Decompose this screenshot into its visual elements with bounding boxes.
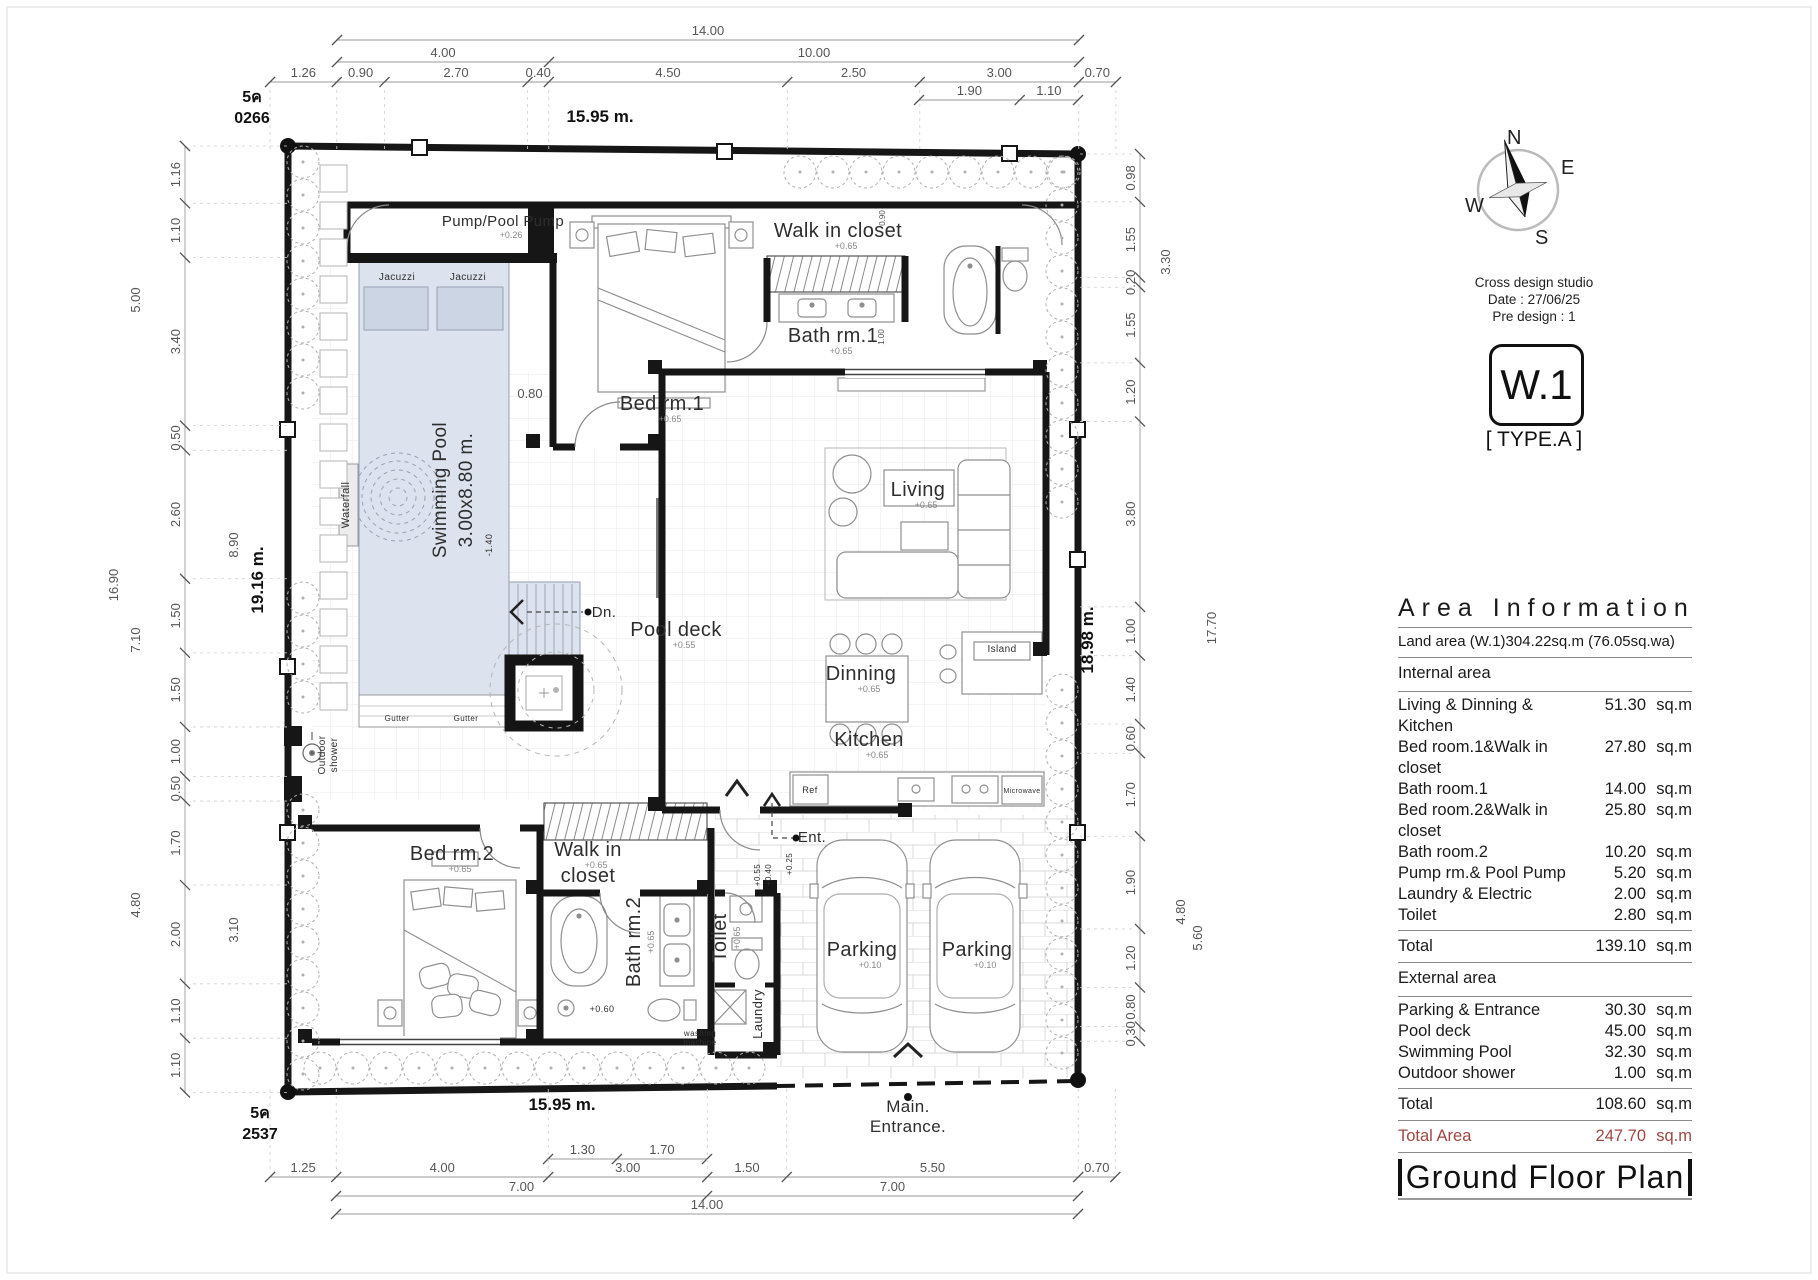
area-row: Swimming Pool32.30sq.m [1398, 1042, 1692, 1063]
area-row-label: Toilet [1398, 905, 1572, 926]
tree-center-dot [451, 1067, 454, 1070]
planter-square [320, 535, 347, 562]
tree-center-dot [1061, 1019, 1064, 1022]
area-row-value: 25.80 [1572, 800, 1646, 842]
area-row-label: Parking & Entrance [1398, 1000, 1572, 1021]
dimension-label: 3.10 [226, 917, 241, 942]
dimension-label: 14.00 [691, 1197, 724, 1212]
tree-center-dot [1061, 722, 1064, 725]
room-label: Gutter [385, 714, 410, 723]
tree-center-dot [931, 171, 934, 174]
dimension-label: 0.90 [348, 65, 373, 80]
planter-square [320, 165, 347, 192]
tree-center-dot [748, 1067, 751, 1070]
tree-center-dot [302, 194, 305, 197]
room-label: Main. [886, 1097, 930, 1116]
room-label: Toilet [709, 913, 731, 962]
corner-marker: 2537 [242, 1126, 278, 1143]
tree-center-dot [302, 260, 305, 263]
area-row-value: 30.30 [1572, 1000, 1646, 1021]
tree-center-dot [1061, 788, 1064, 791]
planter-square [320, 313, 347, 340]
area-row-value: 14.00 [1572, 779, 1646, 800]
area-row-label: Living & Dinning & Kitchen [1398, 695, 1572, 737]
planter-squares [320, 165, 347, 710]
dimension-label: 4.80 [1173, 899, 1188, 924]
dimension-label: 7.00 [880, 1179, 905, 1194]
room-label: closet [561, 865, 616, 887]
area-row: Pump rm.& Pool Pump5.20sq.m [1398, 863, 1692, 884]
pool-gutter [359, 695, 509, 727]
tree-center-dot [1061, 369, 1064, 372]
area-row-value: 1.00 [1572, 1063, 1646, 1084]
tree-center-dot [385, 1067, 388, 1070]
planter-square [320, 572, 347, 599]
tree-center-dot [1061, 689, 1064, 692]
survey-corner-markers: 5ค02665ค2537 [234, 89, 278, 1143]
plan-code: W.1 [1500, 361, 1572, 409]
area-row-label: Bed room.1&Walk in closet [1398, 737, 1572, 779]
dimension-label: 1.16 [168, 162, 183, 187]
dimension-label: 1.30 [570, 1142, 595, 1157]
dimension-label: 5.00 [128, 287, 143, 312]
dimension-label: 0.40 [526, 65, 551, 80]
area-row-unit: sq.m [1646, 884, 1692, 905]
planter-square [320, 276, 347, 303]
area-row-value: 45.00 [1572, 1021, 1646, 1042]
area-row-unit: sq.m [1646, 1021, 1692, 1042]
area-row-unit: sq.m [1646, 1000, 1692, 1021]
level-label: +0.65 [866, 750, 889, 760]
area-row-label: Swimming Pool [1398, 1042, 1572, 1063]
tree-center-dot [418, 1067, 421, 1070]
tree-center-dot [865, 171, 868, 174]
tree-center-dot [319, 1067, 322, 1070]
dimension-label: 1.70 [1123, 782, 1138, 807]
level-label: +0.65 [830, 346, 853, 356]
tree-center-dot [1061, 303, 1064, 306]
room-label: Swimming Pool [430, 422, 451, 558]
room-label: Walk in closet [774, 220, 902, 242]
room-label: Bed rm.2 [410, 843, 494, 865]
dimension-label: 0.70 [1084, 1160, 1109, 1175]
area-row: Toilet2.80sq.m [1398, 905, 1692, 926]
dimension-label: 1.90 [1123, 870, 1138, 895]
room-label: 3.00x8.80 m. [456, 433, 477, 548]
area-row-unit: sq.m [1646, 905, 1692, 926]
tree-center-dot [352, 1067, 355, 1070]
area-row-label: Pool deck [1398, 1021, 1572, 1042]
room-label: +0.40 [764, 864, 773, 886]
predesign-line: Pre design : 1 [1448, 308, 1620, 325]
internal-area-header: Internal area [1398, 661, 1692, 687]
area-row: Pool deck45.00sq.m [1398, 1021, 1692, 1042]
tree-center-dot [484, 1067, 487, 1070]
area-info-title: Area Information [1398, 594, 1692, 623]
dimension-label: 1.55 [1123, 312, 1138, 337]
date-line: Date : 27/06/25 [1448, 291, 1620, 308]
dimension-label: 1.70 [168, 830, 183, 855]
dimension-label: 1.00 [877, 329, 886, 345]
tree-center-dot [1061, 468, 1064, 471]
plan-type-label: [ TYPE.A ] [1454, 428, 1614, 452]
room-label: Kitchen [834, 729, 904, 751]
tree-center-dot [302, 630, 305, 633]
dimension-label: 3.80 [1123, 501, 1138, 526]
level-label: +0.26 [500, 230, 523, 240]
area-row-value: 5.20 [1572, 863, 1646, 884]
level-label: +0.10 [859, 960, 882, 970]
room-label: Bath rm.2 [623, 897, 645, 987]
tree-center-dot [302, 974, 305, 977]
dimension-label: 1.20 [1123, 946, 1138, 971]
land-area-line: Land area (W.1)304.22sq.m (76.05sq.wa) [1398, 631, 1692, 653]
area-information-panel: Area Information Land area (W.1)304.22sq… [1398, 594, 1692, 1200]
tree-center-dot [1061, 237, 1064, 240]
room-label: Microwave [1003, 788, 1040, 795]
tree-center-dot [1061, 953, 1064, 956]
boundary-length-label: 19.16 m. [248, 546, 267, 613]
tree-center-dot [302, 359, 305, 362]
sheet-title: Ground Floor Plan [1402, 1159, 1688, 1196]
area-row-value: 32.30 [1572, 1042, 1646, 1063]
corner-marker: 5ค [242, 89, 262, 106]
road-boundary-dashed [777, 1081, 1078, 1086]
level-label: +0.65 [835, 241, 858, 251]
total-value: 139.10 [1572, 934, 1646, 958]
tree-center-dot [1061, 755, 1064, 758]
dimension-label: 0.80 [1123, 994, 1138, 1019]
tree-center-dot [964, 171, 967, 174]
tree-center-dot [302, 875, 305, 878]
dimension-label: 1.25 [290, 1160, 315, 1175]
area-row-unit: sq.m [1646, 737, 1692, 779]
tree-center-dot [1061, 435, 1064, 438]
boundary-length-label: 15.95 m. [528, 1095, 595, 1114]
dimension-label: 10.00 [798, 45, 831, 60]
area-row-unit: sq.m [1646, 695, 1692, 737]
dimension-label: 0.80 [517, 386, 542, 401]
room-label: Parking [942, 939, 1013, 961]
grand-total-row: Total Area 247.70 sq.m [1398, 1124, 1692, 1148]
bathtub-1-icon [944, 246, 996, 334]
compass-e: E [1561, 157, 1574, 179]
tree-center-dot [1061, 171, 1064, 174]
dimension-label: 1.00 [168, 739, 183, 764]
dimension-label: 4.50 [655, 65, 680, 80]
tree-center-dot [1061, 501, 1064, 504]
level-label: +0.65 [858, 684, 881, 694]
level-label: +0.65 [659, 414, 682, 424]
tree-center-dot [302, 1007, 305, 1010]
tree-center-dot [616, 1067, 619, 1070]
grand-total-value: 247.70 [1572, 1124, 1646, 1148]
planter-square [320, 424, 347, 451]
external-area-rows: Parking & Entrance30.30sq.mPool deck45.0… [1398, 1000, 1692, 1084]
studio-name: Cross design studio [1448, 274, 1620, 291]
boundary-length-label: 18.98 m. [1078, 606, 1097, 673]
dimension-label: 1.10 [168, 218, 183, 243]
vanity-2-icon [660, 896, 694, 986]
area-row-unit: sq.m [1646, 779, 1692, 800]
area-row-unit: sq.m [1646, 842, 1692, 863]
tree-center-dot [302, 161, 305, 164]
area-row-unit: sq.m [1646, 1063, 1692, 1084]
dimension-label: 1.10 [1036, 83, 1061, 98]
tree-center-dot [302, 1040, 305, 1043]
dimension-label: 0.20 [1123, 270, 1138, 295]
room-label: Living [891, 479, 946, 501]
room-label: Dn. [592, 604, 617, 621]
title-block: Cross design studio Date : 27/06/25 Pre … [1448, 274, 1620, 325]
tree-center-dot [1061, 920, 1064, 923]
dimension-label: 4.80 [128, 892, 143, 917]
north-compass: N E W S [1443, 118, 1593, 268]
plan-code-box: W.1 [1489, 344, 1584, 426]
tree-center-dot [302, 326, 305, 329]
tree-center-dot [682, 1067, 685, 1070]
tree-center-dot [550, 1067, 553, 1070]
internal-total-row: Total 139.10 sq.m [1398, 934, 1692, 958]
area-row: Bath room.114.00sq.m [1398, 779, 1692, 800]
planter-square [320, 202, 347, 229]
dimension-label: 1.40 [1123, 677, 1138, 702]
tree-center-dot [302, 663, 305, 666]
room-label: Laundry [750, 989, 765, 1039]
dimension-label: 0.70 [1085, 65, 1110, 80]
compass-s: S [1535, 227, 1548, 249]
planter-square [320, 387, 347, 414]
area-row: Outdoor shower1.00sq.m [1398, 1063, 1692, 1084]
dimension-label: 1.00 [1123, 619, 1138, 644]
room-label: Bath rm.1 [788, 325, 878, 347]
room-label: Waterfall [340, 482, 352, 529]
area-row-unit: sq.m [1646, 800, 1692, 842]
corner-marker: 0266 [234, 110, 270, 127]
area-row: Laundry & Electric2.00sq.m [1398, 884, 1692, 905]
dimension-label: 7.00 [509, 1179, 534, 1194]
tree-center-dot [302, 842, 305, 845]
room-label: Walk in [554, 839, 622, 861]
tree-center-dot [898, 171, 901, 174]
dimension-label: 14.00 [692, 23, 725, 38]
dimension-label: 5.60 [1190, 925, 1205, 950]
room-label: +0.25 [785, 853, 794, 875]
room-label: Ent. [798, 829, 826, 846]
dimension-label: 7.10 [128, 627, 143, 652]
grand-total-unit: sq.m [1646, 1124, 1692, 1148]
dimension-label: 0.30 [1123, 1021, 1138, 1046]
tree-center-dot [302, 1073, 305, 1076]
total-value: 108.60 [1572, 1092, 1646, 1116]
dimension-label: 5.50 [920, 1160, 945, 1175]
room-label: washing [683, 1029, 716, 1038]
room-label: Parking [827, 939, 898, 961]
area-row-value: 51.30 [1572, 695, 1646, 737]
tree-center-dot [1030, 171, 1033, 174]
area-row-label: Bed room.2&Walk in closet [1398, 800, 1572, 842]
room-label: Outdoor [317, 735, 328, 774]
area-row-unit: sq.m [1646, 1042, 1692, 1063]
compass-w: W [1465, 195, 1484, 217]
tree-center-dot [1061, 402, 1064, 405]
level-label: +0.65 [732, 927, 742, 950]
tree-center-dot [302, 908, 305, 911]
room-label: +0.55 [753, 864, 762, 886]
washing-machine-icon [714, 990, 746, 1024]
dimension-label: 17.70 [1204, 612, 1219, 645]
area-row-value: 2.80 [1572, 905, 1646, 926]
area-row-label: Bath room.2 [1398, 842, 1572, 863]
dimension-label: 3.30 [1158, 249, 1173, 274]
tree-center-dot [302, 597, 305, 600]
dimension-label: 1.50 [168, 677, 183, 702]
dimension-label: 2.60 [168, 502, 183, 527]
sheet-title-bar: Ground Floor Plan [1398, 1159, 1692, 1200]
area-row: Bed room.1&Walk in closet27.80sq.m [1398, 737, 1692, 779]
tree-center-dot [799, 171, 802, 174]
tree-center-dot [1061, 336, 1064, 339]
room-label: Entrance. [870, 1117, 946, 1136]
dimension-label: 4.00 [430, 45, 455, 60]
dimension-label: 1.90 [957, 83, 982, 98]
level-label: +0.10 [974, 960, 997, 970]
tree-center-dot [302, 696, 305, 699]
external-total-row: Total 108.60 sq.m [1398, 1092, 1692, 1116]
dimension-label: 1.10 [168, 998, 183, 1023]
area-row: Bed room.2&Walk in closet25.80sq.m [1398, 800, 1692, 842]
area-row-value: 27.80 [1572, 737, 1646, 779]
room-label: +0.60 [590, 1004, 615, 1014]
dimension-label: 2.70 [443, 65, 468, 80]
area-row-label: Laundry & Electric [1398, 884, 1572, 905]
dimension-label: 3.00 [615, 1160, 640, 1175]
dimension-label: 3.00 [987, 65, 1012, 80]
dimension-label: 0.50 [168, 776, 183, 801]
tree-center-dot [517, 1067, 520, 1070]
dimension-label: 1.10 [168, 1053, 183, 1078]
tree-center-dot [1061, 204, 1064, 207]
room-label: Jacuzzi [379, 272, 415, 283]
external-area-header: External area [1398, 966, 1692, 992]
area-row: Bath room.210.20sq.m [1398, 842, 1692, 863]
level-label: +0.65 [449, 864, 472, 874]
level-label: +0.65 [915, 500, 938, 510]
area-row-unit: sq.m [1646, 863, 1692, 884]
corner-marker: 5ค [250, 1105, 270, 1122]
room-label: Bed rm.1 [620, 393, 704, 415]
area-row-value: 10.20 [1572, 842, 1646, 863]
planter-square [320, 350, 347, 377]
tree-center-dot [302, 941, 305, 944]
total-label: Total [1398, 934, 1572, 958]
dimension-label: 1.50 [734, 1160, 759, 1175]
tree-center-dot [302, 392, 305, 395]
title-end-bar [1688, 1159, 1692, 1196]
dimension-label: 3.40 [168, 329, 183, 354]
planter-square [320, 646, 347, 673]
area-row-label: Pump rm.& Pool Pump [1398, 863, 1572, 884]
deck-planter [510, 660, 578, 726]
dimension-label: 4.00 [430, 1160, 455, 1175]
area-row-value: 2.00 [1572, 884, 1646, 905]
dimension-label: 1.70 [649, 1142, 674, 1157]
dimension-label: 1.26 [291, 65, 316, 80]
room-label: shower [329, 737, 340, 772]
dimension-label: 1.55 [1123, 227, 1138, 252]
dimension-label: 0.98 [1123, 165, 1138, 190]
boundary-length-label: 15.95 m. [566, 107, 633, 126]
area-row: Parking & Entrance30.30sq.m [1398, 1000, 1692, 1021]
room-label: Island [987, 644, 1016, 655]
dimension-label: 0.50 [168, 425, 183, 450]
room-label: Gutter [454, 714, 479, 723]
tree-center-dot [1061, 854, 1064, 857]
tree-center-dot [832, 171, 835, 174]
bathtub-2-icon [551, 896, 607, 986]
dimension-label: 2.00 [168, 922, 183, 947]
compass-n: N [1507, 127, 1521, 149]
planter-square [320, 609, 347, 636]
area-row-label: Bath room.1 [1398, 779, 1572, 800]
jacuzzi-bench [364, 287, 428, 330]
jacuzzi-bench [437, 287, 503, 330]
tree-center-dot [1061, 986, 1064, 989]
tree-center-dot [1061, 821, 1064, 824]
room-label: Ref [802, 785, 817, 795]
room-label: Dinning [826, 663, 897, 685]
tree-center-dot [1061, 270, 1064, 273]
grand-total-label: Total Area [1398, 1124, 1572, 1148]
wardrobe-1-icon [767, 256, 905, 292]
tree-center-dot [1061, 887, 1064, 890]
tree-center-dot [1061, 1052, 1064, 1055]
tree-center-dot [302, 293, 305, 296]
area-row-label: Outdoor shower [1398, 1063, 1572, 1084]
room-label: Pool deck [630, 619, 722, 641]
room-label: -1.40 [484, 534, 494, 557]
vanity-1-icon [779, 294, 894, 322]
room-label: Jacuzzi [450, 272, 486, 283]
window-bench [838, 378, 985, 391]
tree-center-dot [302, 809, 305, 812]
dimension-label: 1.50 [168, 603, 183, 628]
dimension-label: 16.90 [106, 569, 121, 602]
level-label: +0.55 [673, 640, 696, 650]
tree-center-dot [997, 171, 1000, 174]
room-label: Pump/Pool Pump [442, 213, 564, 230]
level-label: +0.65 [646, 931, 656, 954]
tree-center-dot [715, 1067, 718, 1070]
dimension-label: 1.20 [1123, 379, 1138, 404]
total-unit: sq.m [1646, 934, 1692, 958]
internal-area-rows: Living & Dinning & Kitchen51.30sq.mBed r… [1398, 695, 1692, 926]
tree-center-dot [649, 1067, 652, 1070]
area-row: Living & Dinning & Kitchen51.30sq.m [1398, 695, 1692, 737]
planter-square [320, 683, 347, 710]
dimension-label: 0.60 [1123, 726, 1138, 751]
dimension-label: 2.50 [841, 65, 866, 80]
planter-square [320, 239, 347, 266]
tree-center-dot [302, 227, 305, 230]
room-label: machine [683, 1038, 716, 1047]
dimension-label: 8.90 [226, 532, 241, 557]
total-label: Total [1398, 1092, 1572, 1116]
tree-center-dot [583, 1067, 586, 1070]
total-unit: sq.m [1646, 1092, 1692, 1116]
